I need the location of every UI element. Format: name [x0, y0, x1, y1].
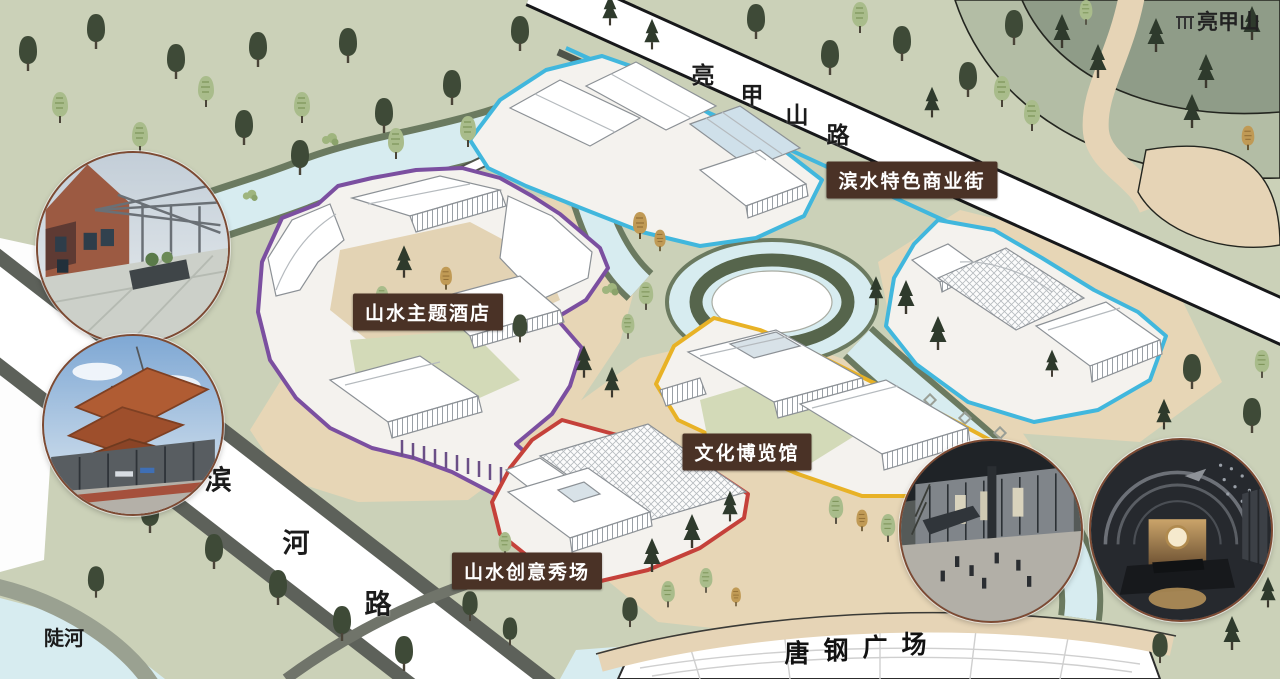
photo-brick-canopy-art — [38, 153, 228, 343]
site-plan-illustration: 亮 甲 山 路 滨 河 路 唐 钢 广 场 亮甲山 陡河 滨水特色商业街 山水主… — [0, 0, 1280, 679]
river-label: 陡河 — [44, 622, 84, 651]
zone-label-museum: 文化博览馆 — [682, 434, 811, 471]
road-top-char-4: 路 — [827, 116, 850, 150]
photo-industrial-courtyard-art — [901, 441, 1081, 621]
photo-tunnel-lounge-art — [1091, 440, 1271, 620]
road-top-char-2: 甲 — [741, 76, 764, 110]
map-artwork — [0, 0, 1280, 679]
road-left-char-2: 河 — [283, 522, 310, 561]
road-top-char-3: 山 — [786, 96, 809, 130]
zone-label-hotel: 山水主题酒店 — [353, 294, 503, 331]
photo-brick-canopy — [36, 151, 230, 345]
gate-icon — [1176, 14, 1194, 29]
photo-tunnel-lounge — [1089, 438, 1273, 622]
photo-corten-museum — [42, 334, 224, 516]
road-left-char-3: 路 — [365, 583, 392, 622]
mountain-corner-text: 亮甲山 — [1197, 6, 1260, 36]
plaza-char-2: 钢 — [823, 631, 848, 667]
mountain-corner-label: 亮甲山 — [1176, 6, 1260, 36]
photo-industrial-courtyard — [899, 439, 1083, 623]
road-top-char-1: 亮 — [692, 56, 715, 90]
plaza-char-4: 场 — [901, 625, 926, 661]
photo-corten-museum-art — [44, 336, 222, 514]
zone-label-show: 山水创意秀场 — [452, 553, 602, 590]
zone-label-commercial: 滨水特色商业街 — [826, 162, 997, 199]
plaza-char-1: 唐 — [784, 634, 809, 670]
plaza-char-3: 广 — [862, 628, 887, 664]
